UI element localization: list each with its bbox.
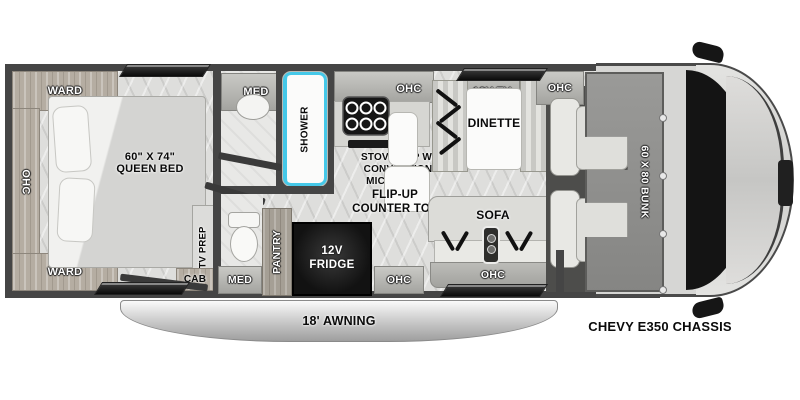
pantry-label: PANTRY — [271, 230, 283, 274]
rivet — [659, 286, 667, 294]
tv-prep-label: TV PREP — [198, 226, 209, 268]
bunk-label: 60 X 80 BUNK — [639, 145, 651, 218]
bedroom-window-bottom — [94, 282, 190, 295]
sofa-ohc-label: OHC — [481, 269, 505, 281]
bed-name-label: QUEEN BED — [116, 163, 183, 175]
medicine-cabinet-bottom-label: MED — [228, 274, 252, 286]
queen-bed-label: 60" X 74" QUEEN BED — [92, 146, 208, 180]
front-grille — [778, 160, 793, 206]
kitchen-ohc-label-box: OHC — [384, 80, 434, 98]
fridge: 12V FRIDGE — [292, 222, 372, 296]
toilet-bowl — [230, 226, 258, 262]
overhead-cabinet-bedroom-label: OHC — [20, 169, 32, 194]
bedroom-window-top — [119, 64, 211, 77]
sofa-label-box: SOFA — [462, 208, 524, 222]
sofa-window — [440, 284, 548, 297]
shower-label: SHOWER — [300, 106, 311, 152]
chassis-label-box: CHEVY E350 CHASSIS — [578, 317, 742, 335]
bed-size-label: 60" X 74" — [125, 151, 175, 163]
dinette-ohc-label: OHC — [548, 82, 572, 94]
pantry-cabinet: PANTRY — [262, 208, 292, 296]
bunk-label-box: 60 X 80 BUNK — [626, 72, 664, 292]
cupholder-console — [482, 226, 500, 264]
flip-up-label: FLIP-UP COUNTER TOP — [352, 189, 438, 216]
pillow — [52, 105, 93, 173]
awning: 18' AWNING — [120, 300, 558, 342]
rivet — [659, 172, 667, 180]
chassis-label: CHEVY E350 CHASSIS — [588, 319, 732, 334]
stove-vent — [348, 140, 390, 148]
dinette-label-box: DINETTE — [466, 115, 522, 131]
fridge-label: 12V FRIDGE — [309, 245, 354, 272]
cupholder — [487, 234, 496, 243]
sofa-label: SOFA — [476, 208, 509, 222]
dinette-bench-left — [432, 80, 468, 172]
side-mirror-top — [691, 40, 726, 63]
kitchen-sink — [388, 112, 418, 166]
rv-floorplan-diagram: WARD OHC WARD 60" X 74" QUEEN BED TV PRE… — [0, 0, 800, 400]
rivet — [659, 230, 667, 238]
dinette-window — [456, 68, 548, 81]
kitchen-ohc-label: OHC — [396, 83, 421, 95]
rivet — [659, 114, 667, 122]
overhead-cabinet-galley: OHC — [374, 266, 424, 294]
shower: SHOWER — [282, 71, 328, 187]
medicine-cabinet-bottom: MED — [218, 266, 262, 294]
sofa-cab-wall — [556, 250, 564, 296]
stove-icon — [342, 96, 390, 136]
overhead-cabinet-bedroom: OHC — [12, 108, 40, 256]
bathroom-sink — [236, 94, 270, 120]
dinette-label: DINETTE — [468, 116, 521, 130]
awning-label: 18' AWNING — [302, 314, 375, 328]
pillow — [56, 177, 95, 243]
bedroom-bath-wall — [213, 64, 221, 298]
cupholder — [487, 245, 496, 254]
galley-ohc-label: OHC — [387, 274, 411, 286]
